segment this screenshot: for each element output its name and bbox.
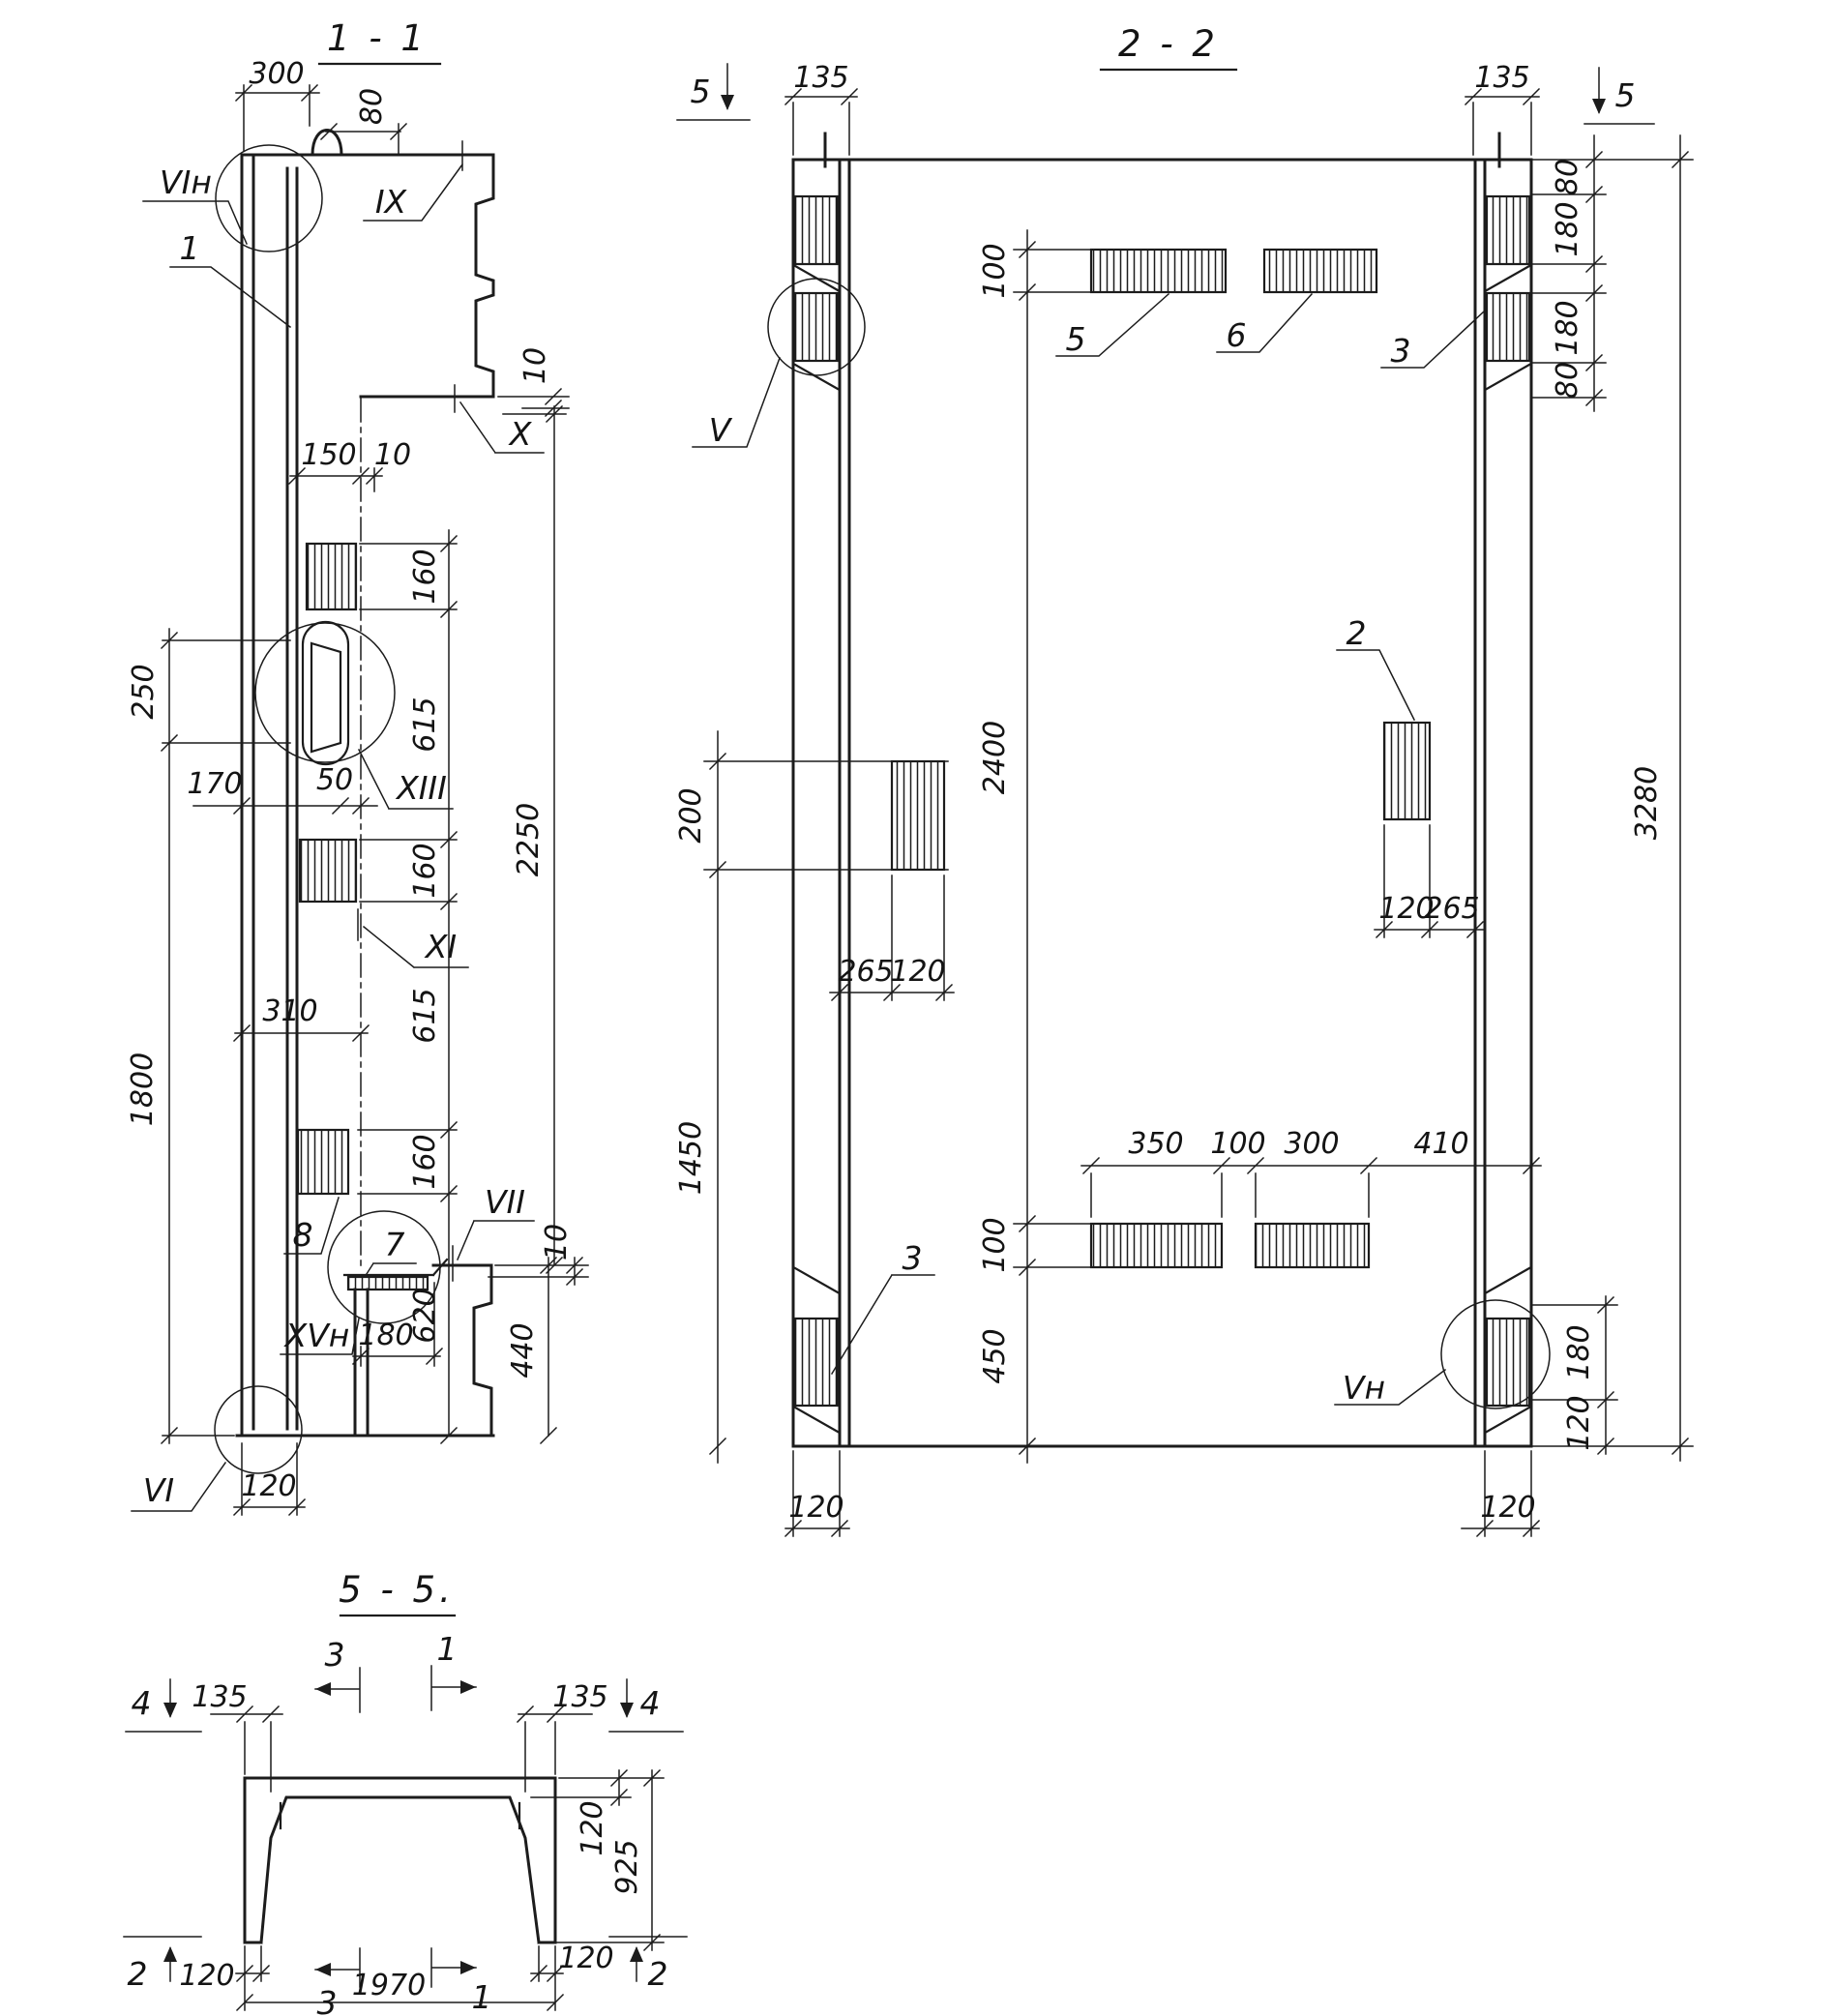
dim-180: 180 (358, 1319, 413, 1352)
dim-615-1: 615 (408, 697, 442, 752)
section-2-2: 2 - 2 5 5 135 135 80 180 1 (674, 23, 1693, 1536)
dim-120-bot-left: 120 (179, 1959, 234, 1993)
slab-anchor-2 (1384, 723, 1430, 819)
dimension-ticks-2-2 (710, 89, 1688, 1536)
dim-1450: 1450 (674, 1121, 708, 1195)
section-1-1: 1 - 1 300 80 10 150 10 160 615 160 (126, 17, 588, 1515)
label-vin: VIн (160, 163, 212, 201)
label-7: 7 (385, 1226, 405, 1263)
dim-300: 300 (249, 57, 304, 91)
dim-180-rb: 180 (1562, 1324, 1596, 1379)
callout-circle-vin (216, 145, 322, 252)
wall-anchor (795, 293, 838, 361)
section-5-5: 5 - 5. 3 1 4 4 3 1 2 2 135 135 120 925 1… (124, 1569, 687, 2016)
dim-120-top: 120 (576, 1800, 609, 1855)
dim-440: 440 (506, 1322, 540, 1378)
marker-5-left: 5 (691, 73, 711, 110)
label-vi: VI (143, 1471, 174, 1509)
label-xi: XI (424, 928, 457, 965)
section-arrowheads-5-5 (163, 1680, 643, 1976)
marker-2-right: 2 (648, 1955, 668, 1993)
dim-2400: 2400 (978, 721, 1012, 794)
dim-310: 310 (262, 994, 317, 1028)
label-8: 8 (293, 1216, 313, 1254)
detail-7-hatch (348, 1277, 428, 1290)
marker-4-right: 4 (640, 1684, 661, 1722)
section-2-2-title: 2 - 2 (1118, 23, 1219, 65)
label-1: 1 (180, 229, 200, 267)
dim-10-mid: 10 (374, 438, 411, 472)
slab-anchor (892, 761, 944, 870)
marker-1-top: 1 (437, 1630, 458, 1668)
slab-anchor (1256, 1224, 1369, 1267)
dim-10-top: 10 (518, 347, 552, 384)
dim-120-bot-right: 120 (558, 1942, 613, 1975)
label-v: V (709, 411, 733, 449)
drawing-sheet: 1 - 1 300 80 10 150 10 160 615 160 (0, 0, 1835, 2016)
label-vii: VII (485, 1183, 525, 1221)
dim-160-1: 160 (408, 548, 442, 604)
dim-265-left: 265 (838, 955, 893, 989)
label-3-bot: 3 (903, 1239, 923, 1277)
channel-outline-5-5 (245, 1778, 555, 1942)
anchor-bar (307, 544, 356, 609)
dim-1970: 1970 (352, 1969, 426, 2002)
marker-1-bot: 1 (472, 1978, 492, 2016)
dim-265-right: 265 (1424, 892, 1479, 926)
marker-3-top: 3 (325, 1636, 345, 1674)
slot-inner (311, 643, 340, 752)
dim-200: 200 (674, 787, 708, 843)
dim-10-bot: 10 (540, 1224, 574, 1260)
label-3-top: 3 (1391, 332, 1411, 370)
label-5: 5 (1066, 320, 1086, 358)
label-xvn: XVн (283, 1317, 350, 1354)
dim-100-top: 100 (978, 243, 1012, 298)
section-1-1-title: 1 - 1 (327, 17, 428, 59)
label-vn: Vн (1343, 1369, 1385, 1407)
section-5-5-title: 5 - 5. (339, 1569, 455, 1611)
label-2: 2 (1347, 614, 1367, 652)
dim-135-right: 135 (1474, 61, 1529, 95)
corner-marks (281, 1803, 519, 1828)
dim-120: 120 (241, 1469, 296, 1503)
wall-anchor (1487, 196, 1529, 264)
panel-outline-1-1 (237, 131, 493, 1437)
dim-120-bot-left: 120 (788, 1491, 844, 1525)
dim-300: 300 (1284, 1127, 1339, 1161)
dim-2250: 2250 (512, 803, 546, 876)
dim-170: 170 (187, 767, 242, 801)
dim-180-top: 180 (1551, 201, 1584, 256)
marker-5-right: 5 (1615, 76, 1636, 114)
dim-80-top2: 80 (1551, 362, 1584, 399)
dim-615-2: 615 (408, 988, 442, 1043)
dim-120-rb: 120 (1562, 1395, 1596, 1450)
dim-135-right: 135 (552, 1680, 607, 1714)
dim-160-2: 160 (408, 843, 442, 898)
dim-1800: 1800 (126, 1052, 160, 1126)
dim-135-left: 135 (793, 61, 848, 95)
slab-anchor (1091, 1224, 1222, 1267)
slab-anchor-6 (1264, 250, 1376, 292)
label-xiii: XIII (395, 769, 447, 807)
dim-410: 410 (1413, 1127, 1468, 1161)
marker-3-bot: 3 (317, 1984, 338, 2016)
dim-100-bot: 100 (978, 1217, 1012, 1272)
label-ix: IX (375, 183, 408, 221)
dim-100-mid: 100 (1210, 1127, 1265, 1161)
anchor-bar (300, 840, 356, 902)
dim-120-bot-right: 120 (1480, 1491, 1535, 1525)
callout-circle-xiii (255, 623, 395, 762)
dim-160-3: 160 (408, 1134, 442, 1189)
dim-135-left: 135 (192, 1680, 247, 1714)
dim-3280: 3280 (1630, 766, 1664, 840)
dim-80: 80 (355, 88, 389, 125)
label-x: X (508, 415, 533, 453)
dim-250: 250 (127, 664, 161, 719)
dim-80-top: 80 (1551, 159, 1584, 195)
dim-150: 150 (301, 438, 356, 472)
wall-anchor (795, 196, 838, 264)
marker-2-left: 2 (128, 1955, 148, 1993)
marker-4-left: 4 (132, 1684, 152, 1722)
slab-anchor-5 (1091, 250, 1226, 292)
dim-925: 925 (610, 1839, 644, 1894)
dim-50: 50 (316, 763, 353, 797)
dim-350: 350 (1128, 1127, 1183, 1161)
label-6: 6 (1227, 316, 1247, 354)
technical-drawing: 1 - 1 300 80 10 150 10 160 615 160 (0, 0, 1835, 2016)
dim-120-left: 120 (890, 955, 945, 989)
dim-180-top2: 180 (1551, 300, 1584, 355)
dim-450: 450 (978, 1328, 1012, 1383)
wall-anchor (1487, 1319, 1529, 1406)
wall-anchor (795, 1319, 838, 1406)
anchor-bar (298, 1130, 348, 1194)
wall-anchor (1487, 293, 1529, 361)
